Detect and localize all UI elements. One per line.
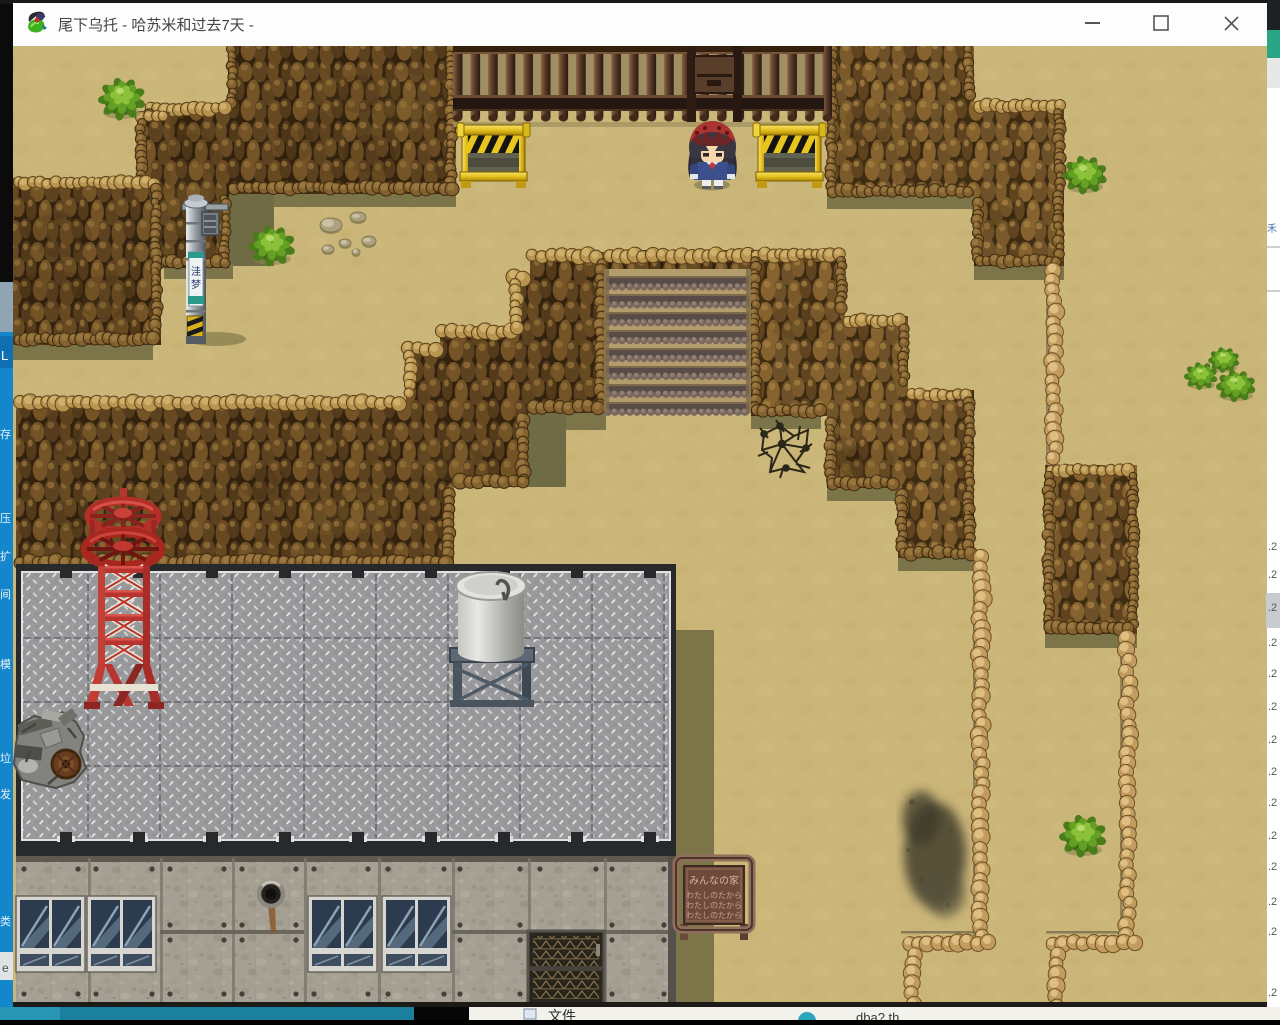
- svg-text:发: 发: [0, 787, 11, 801]
- svg-text:.2: .2: [1268, 668, 1277, 680]
- svg-text:dba? th: dba? th: [856, 1010, 899, 1020]
- svg-text:.2: .2: [1268, 766, 1277, 778]
- svg-text:洼: 洼: [191, 265, 201, 278]
- svg-text:.2: .2: [1268, 987, 1277, 999]
- svg-text:扩: 扩: [0, 549, 11, 563]
- svg-text:.2: .2: [1268, 602, 1277, 614]
- svg-text:わたしのたから: わたしのたから: [686, 891, 742, 900]
- svg-text:尾下乌托 - 哈苏米和过去7天 -: 尾下乌托 - 哈苏米和过去7天 -: [58, 17, 254, 34]
- svg-text:压: 压: [0, 512, 11, 525]
- svg-text:.2: .2: [1268, 569, 1277, 581]
- svg-text:.2: .2: [1268, 701, 1277, 713]
- svg-text:禾: 禾: [1267, 223, 1277, 235]
- svg-text:.2: .2: [1268, 861, 1277, 873]
- svg-text:间: 间: [0, 588, 11, 601]
- svg-text:模: 模: [0, 658, 11, 671]
- svg-text:.2: .2: [1268, 926, 1277, 938]
- svg-text:わたしのたから: わたしのたから: [686, 911, 742, 920]
- svg-text:.2: .2: [1268, 830, 1277, 842]
- svg-text:L: L: [1, 348, 8, 363]
- svg-text:垃: 垃: [0, 751, 11, 765]
- svg-text:.2: .2: [1268, 896, 1277, 908]
- svg-text:.2: .2: [1268, 637, 1277, 649]
- svg-text:わたしのたから: わたしのたから: [686, 901, 742, 910]
- svg-text:e: e: [2, 961, 9, 975]
- svg-text:文件: 文件: [548, 1008, 576, 1020]
- svg-text:存: 存: [0, 427, 11, 441]
- svg-text:.2: .2: [1268, 541, 1277, 553]
- svg-text:みんなの家: みんなの家: [689, 874, 739, 887]
- svg-text:.2: .2: [1268, 734, 1277, 746]
- svg-text:类: 类: [0, 914, 11, 928]
- svg-text:梦: 梦: [191, 279, 201, 291]
- svg-text:.2: .2: [1268, 797, 1277, 809]
